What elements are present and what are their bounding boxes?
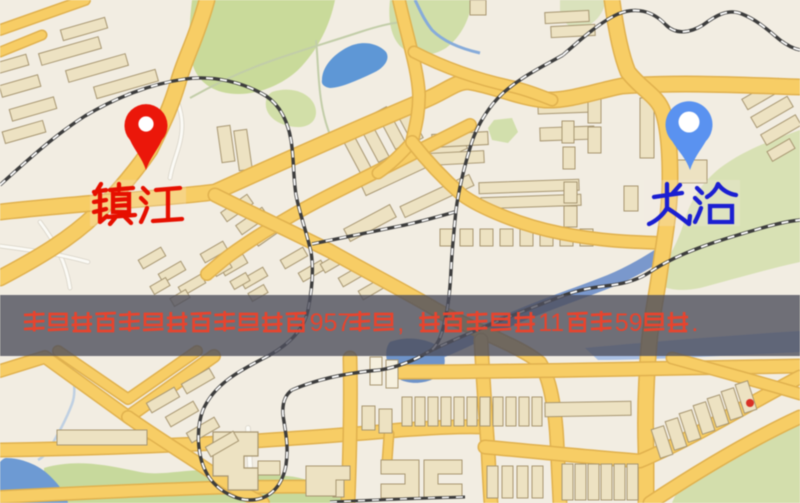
- svg-text:,: ,: [397, 309, 404, 337]
- svg-text:11: 11: [538, 309, 564, 337]
- svg-text:59: 59: [615, 309, 643, 337]
- svg-text:957: 957: [310, 309, 352, 337]
- svg-text:.: .: [691, 309, 698, 337]
